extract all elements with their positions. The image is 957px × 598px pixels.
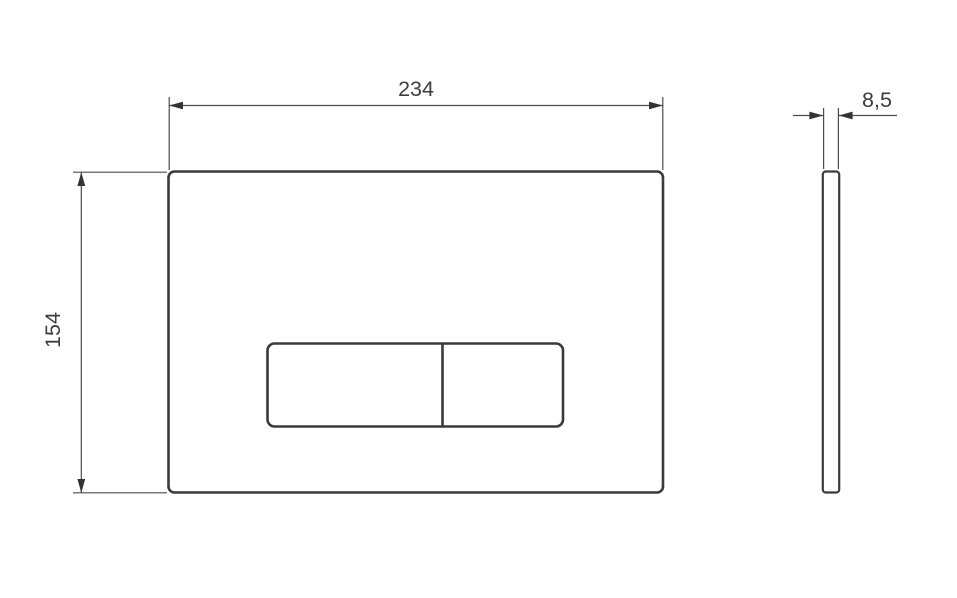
technical-drawing-canvas: 234 154 8,5 <box>0 0 957 598</box>
plate-side-profile-outline <box>823 172 839 493</box>
width-arrow-left-icon <box>169 102 183 110</box>
width-dimension-label: 234 <box>398 77 434 101</box>
side-view <box>823 172 839 493</box>
dimension-arrowheads <box>77 102 852 493</box>
height-dimension-label: 154 <box>41 312 65 348</box>
thickness-dimension-label: 8,5 <box>862 88 892 112</box>
width-arrow-right-icon <box>649 102 663 110</box>
height-arrow-top-icon <box>77 172 85 186</box>
thickness-arrow-right-icon <box>839 112 853 120</box>
flush-buttons-outline <box>268 344 564 427</box>
dimension-lines <box>73 97 897 493</box>
height-arrow-bottom-icon <box>77 479 85 493</box>
front-view <box>169 172 664 493</box>
thickness-arrow-left-icon <box>809 112 823 120</box>
flush-plate-drawing: 234 154 8,5 <box>0 0 957 598</box>
plate-front-outline <box>169 172 664 493</box>
